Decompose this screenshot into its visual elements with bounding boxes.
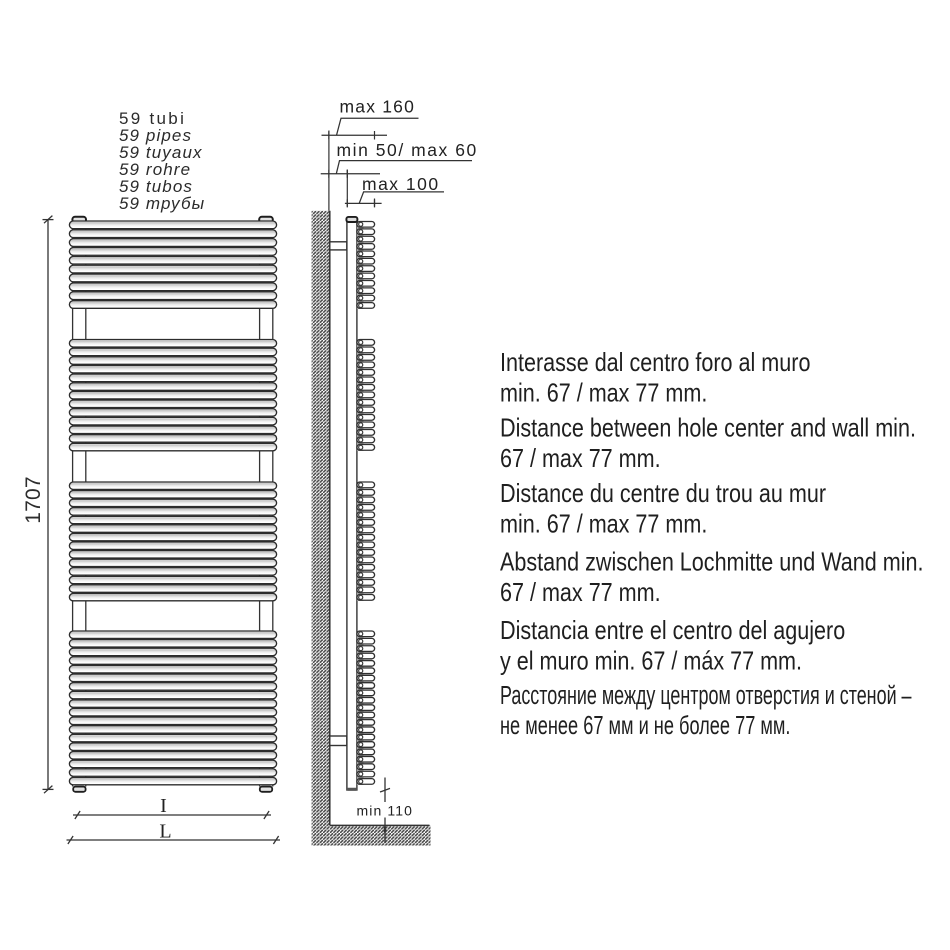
- svg-text:min. 67 / max 77 mm.: min. 67 / max 77 mm.: [500, 379, 707, 408]
- svg-text:Расстояние между центром отвер: Расстояние между центром отверстия и сте…: [500, 681, 912, 710]
- svg-text:67 / max 77 mm.: 67 / max 77 mm.: [500, 444, 661, 473]
- svg-text:y el muro min. 67 / máx 77 mm.: y el muro min. 67 / máx 77 mm.: [500, 647, 802, 676]
- svg-text:I: I: [160, 795, 167, 817]
- svg-text:min 50/ max 60: min 50/ max 60: [337, 140, 478, 160]
- svg-text:1707: 1707: [22, 476, 45, 524]
- svg-text:max 160: max 160: [340, 97, 416, 117]
- svg-text:67 / max 77 mm.: 67 / max 77 mm.: [500, 578, 661, 607]
- svg-text:max 100: max 100: [362, 174, 440, 194]
- svg-text:min 110: min 110: [357, 803, 413, 819]
- svg-text:L: L: [159, 821, 171, 843]
- svg-text:Interasse dal centro foro al m: Interasse dal centro foro al muro: [500, 348, 810, 377]
- svg-text:min. 67 / max 77 mm.: min. 67 / max 77 mm.: [500, 510, 707, 539]
- svg-text:Abstand zwischen Lochmitte und: Abstand zwischen Lochmitte und Wand min.: [500, 548, 924, 577]
- svg-text:Distance du centre du trou au: Distance du centre du trou au mur: [500, 479, 826, 508]
- svg-text:Distancia entre el centro del: Distancia entre el centro del agujero: [500, 616, 845, 645]
- svg-text:Distance between hole center a: Distance between hole center and wall mi…: [500, 414, 916, 443]
- svg-text:59 трубы: 59 трубы: [119, 194, 205, 213]
- svg-text:не менее 67 мм и не более 77 м: не менее 67 мм и не более 77 мм.: [500, 711, 790, 740]
